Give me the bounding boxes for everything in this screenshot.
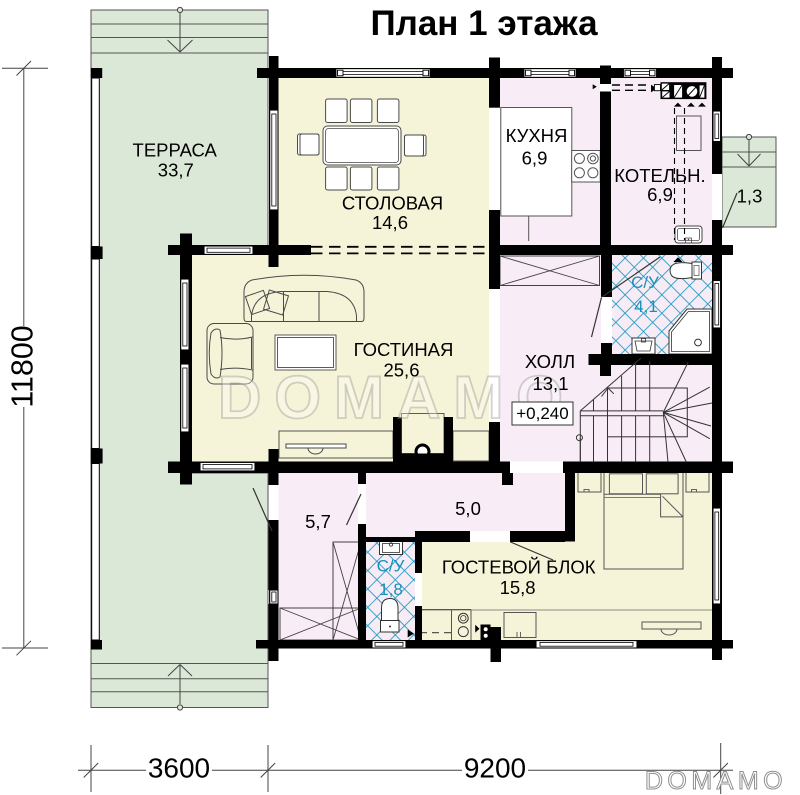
svg-text:13,1: 13,1 [532, 373, 568, 394]
svg-text:15,8: 15,8 [500, 577, 536, 598]
svg-text:СТОЛОВАЯ: СТОЛОВАЯ [342, 193, 443, 214]
svg-text:1,3: 1,3 [737, 186, 763, 207]
svg-text:С/У: С/У [377, 557, 405, 576]
svg-text:С/У: С/У [631, 273, 659, 292]
svg-text:ХОЛЛ: ХОЛЛ [525, 351, 575, 372]
svg-text:+0,240: +0,240 [516, 404, 568, 423]
svg-text:КОТЕЛЬН.: КОТЕЛЬН. [614, 165, 705, 186]
svg-text:6,9: 6,9 [647, 184, 673, 205]
svg-text:3600: 3600 [148, 752, 210, 783]
svg-text:1,8: 1,8 [379, 580, 403, 599]
svg-text:DOMAMO: DOMAMO [645, 767, 787, 795]
svg-text:5,7: 5,7 [305, 511, 331, 532]
svg-text:ГОСТЕВОЙ БЛОК: ГОСТЕВОЙ БЛОК [442, 557, 596, 578]
svg-text:План 1 этажа: План 1 этажа [370, 4, 598, 43]
svg-text:11800: 11800 [6, 325, 40, 408]
svg-text:25,6: 25,6 [383, 360, 419, 381]
svg-text:4,1: 4,1 [634, 297, 658, 316]
svg-text:КУХНЯ: КУХНЯ [506, 125, 568, 146]
svg-text:5,0: 5,0 [455, 498, 481, 519]
svg-text:33,7: 33,7 [158, 160, 194, 181]
svg-text:9200: 9200 [464, 753, 526, 784]
svg-text:6,9: 6,9 [522, 148, 548, 169]
svg-text:14,6: 14,6 [372, 212, 408, 233]
svg-text:ТЕРРАСА: ТЕРРАСА [133, 140, 218, 161]
svg-text:ГОСТИНАЯ: ГОСТИНАЯ [354, 339, 454, 360]
